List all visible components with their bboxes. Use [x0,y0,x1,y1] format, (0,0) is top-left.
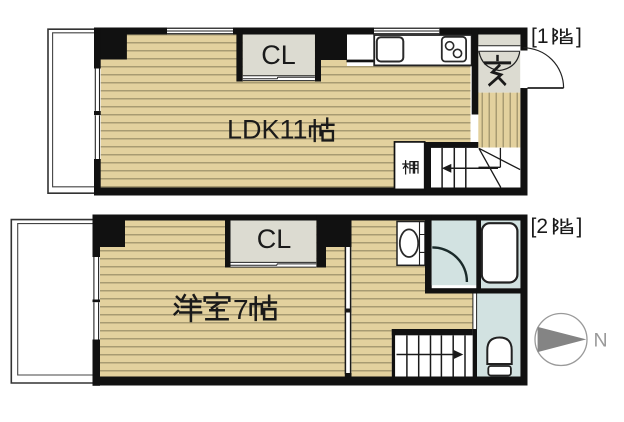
svg-text:N: N [594,330,608,352]
svg-text:]: ] [577,215,583,238]
svg-text:[1: [1 [531,25,549,48]
svg-text:7: 7 [233,294,249,325]
svg-text:LDK11: LDK11 [227,115,308,145]
svg-text:]: ] [576,25,582,48]
svg-text:CL: CL [257,224,292,254]
svg-text:[2: [2 [531,215,549,238]
svg-text:CL: CL [261,40,296,70]
